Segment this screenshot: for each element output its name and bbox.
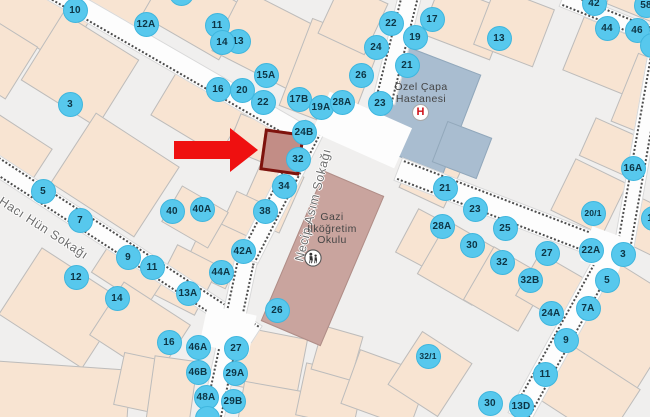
address-marker[interactable]: 10 xyxy=(63,0,88,23)
address-marker[interactable]: 30 xyxy=(460,233,485,258)
address-marker[interactable]: 22 xyxy=(251,90,276,115)
address-marker[interactable]: 11 xyxy=(533,362,558,387)
address-marker[interactable]: 44A xyxy=(209,260,234,285)
address-marker[interactable]: 24A xyxy=(539,301,564,326)
address-marker[interactable]: 21 xyxy=(433,176,458,201)
address-marker[interactable]: 46B xyxy=(186,360,211,385)
address-marker[interactable]: 22 xyxy=(379,11,404,36)
address-marker[interactable]: 27 xyxy=(224,336,249,361)
address-marker[interactable]: 24B xyxy=(292,120,317,145)
address-marker[interactable]: 21 xyxy=(395,53,420,78)
address-marker[interactable]: 13A xyxy=(176,281,201,306)
address-marker[interactable]: 22A xyxy=(579,238,604,263)
school-label-line3: Okulu xyxy=(289,235,375,247)
address-marker[interactable]: 3 xyxy=(611,242,636,267)
address-marker[interactable]: 29A xyxy=(223,361,248,386)
address-marker[interactable]: 16A xyxy=(621,156,646,181)
map-canvas[interactable]: Hacı Hün Sokağı Necip Asım Sokağı Özel Ç… xyxy=(0,0,650,417)
address-marker[interactable]: 25 xyxy=(493,216,518,241)
address-marker[interactable]: 28A xyxy=(330,90,355,115)
address-marker[interactable]: 30 xyxy=(478,391,503,416)
address-marker[interactable]: 5 xyxy=(595,268,620,293)
address-marker[interactable]: 29B xyxy=(221,389,246,414)
school-children-icon xyxy=(304,249,322,267)
address-marker[interactable]: 28A xyxy=(430,214,455,239)
address-marker[interactable]: 13 xyxy=(487,26,512,51)
address-marker[interactable]: 9 xyxy=(554,328,579,353)
address-marker[interactable]: 44 xyxy=(595,16,620,41)
address-marker[interactable]: 14 xyxy=(105,286,130,311)
address-marker[interactable]: 13D xyxy=(509,394,534,417)
address-marker[interactable]: 42A xyxy=(231,239,256,264)
address-marker[interactable]: 19 xyxy=(403,25,428,50)
address-marker[interactable]: 32 xyxy=(490,250,515,275)
building xyxy=(0,360,131,417)
hospital-label-line1: Özel Çapa xyxy=(373,82,469,94)
address-marker[interactable]: 40 xyxy=(160,199,185,224)
address-marker[interactable]: 32 xyxy=(286,147,311,172)
address-marker[interactable]: 7 xyxy=(68,208,93,233)
highlight-arrow xyxy=(170,124,262,176)
address-marker[interactable]: 32B xyxy=(518,268,543,293)
address-marker[interactable]: 3 xyxy=(58,92,83,117)
address-marker[interactable]: 7A xyxy=(576,296,601,321)
address-marker[interactable]: 23 xyxy=(463,197,488,222)
address-marker[interactable]: 15A xyxy=(254,63,279,88)
school-label: Gazi İlköğretim Okulu xyxy=(289,212,375,247)
address-marker[interactable]: 11 xyxy=(140,255,165,280)
address-marker[interactable]: 20/1 xyxy=(581,201,606,226)
address-marker[interactable]: 12 xyxy=(64,265,89,290)
address-marker[interactable]: 23 xyxy=(368,91,393,116)
address-marker[interactable]: 12A xyxy=(134,12,159,37)
address-marker[interactable]: 26 xyxy=(265,298,290,323)
address-marker[interactable]: 38 xyxy=(253,199,278,224)
address-marker[interactable]: 17B xyxy=(287,87,312,112)
address-marker[interactable]: 32/1 xyxy=(416,344,441,369)
address-marker[interactable]: 16 xyxy=(206,77,231,102)
hospital-h-icon: H xyxy=(412,104,429,121)
address-marker[interactable]: 9 xyxy=(116,245,141,270)
address-marker[interactable]: 27 xyxy=(535,241,560,266)
address-marker[interactable]: 34 xyxy=(272,174,297,199)
school-label-line1: Gazi xyxy=(289,212,375,224)
address-marker[interactable]: 46A xyxy=(186,335,211,360)
address-marker[interactable]: 5 xyxy=(31,179,56,204)
address-marker[interactable]: 26 xyxy=(349,63,374,88)
address-marker[interactable]: 14 xyxy=(210,30,235,55)
address-marker[interactable]: 40A xyxy=(190,197,215,222)
address-marker[interactable]: 24 xyxy=(364,35,389,60)
address-marker[interactable]: 16 xyxy=(157,330,182,355)
